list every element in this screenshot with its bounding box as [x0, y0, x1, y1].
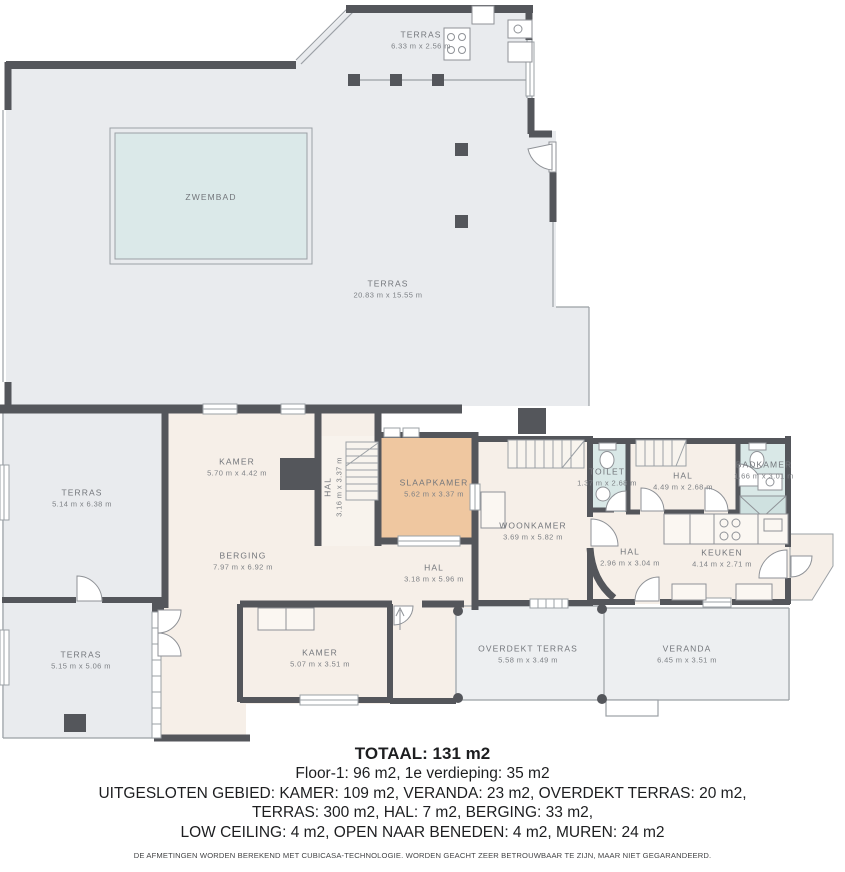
counter: [672, 584, 706, 600]
terrace-post: [390, 74, 402, 86]
outdoor-stove: [444, 28, 470, 60]
closet: [481, 492, 505, 528]
porch-post: [597, 694, 607, 704]
slaapkamer-area: [380, 432, 476, 542]
toilet-icon: [749, 443, 766, 450]
floorplan-drawing: [0, 0, 845, 745]
summary-line-floors: Floor-1: 96 m2, 1e verdieping: 35 m2: [0, 764, 845, 784]
toilet-icon: [599, 443, 616, 450]
summary-disclaimer: DE AFMETINGEN WORDEN BEREKEND MET CUBICA…: [0, 851, 845, 860]
outdoor-sink: [508, 20, 532, 38]
summary-line-excluded-1: UITGESLOTEN GEBIED: KAMER: 109 m2, VERAN…: [0, 784, 845, 804]
floorplan-page: TERRAS6.33 m x 2.56 m ZWEMBAD TERRAS20.8…: [0, 0, 845, 872]
sink-icon: [758, 474, 782, 490]
terrace-west-area: [2, 406, 165, 602]
overdekt-terras-area: [455, 604, 605, 700]
toilet-icon: [600, 452, 614, 469]
chimney-block: [518, 408, 546, 434]
area-fills: [2, 8, 833, 740]
toilet-icon: [750, 452, 764, 469]
counter: [736, 584, 772, 600]
porch-post: [597, 604, 607, 614]
terrace-post: [432, 74, 444, 86]
outdoor-cabinet: [508, 42, 532, 62]
terrace-post: [64, 714, 86, 732]
pool: [110, 128, 312, 264]
hal-south-area: [380, 542, 478, 608]
veranda-area: [605, 608, 790, 700]
summary-block: TOTAAL: 131 m2 Floor-1: 96 m2, 1e verdie…: [0, 744, 845, 860]
interior-block: [280, 458, 318, 490]
porch-post: [453, 606, 463, 616]
terrace-post: [348, 74, 360, 86]
summary-line-excluded-2: TERRAS: 300 m2, HAL: 7 m2, BERGING: 33 m…: [0, 803, 845, 823]
sink-icon: [596, 487, 610, 501]
terrace-post: [455, 215, 468, 228]
summary-total: TOTAAL: 131 m2: [0, 744, 845, 764]
summary-line-excluded-3: LOW CEILING: 4 m2, OPEN NAAR BENEDEN: 4 …: [0, 823, 845, 843]
porch-post: [453, 693, 463, 703]
terrace-post: [455, 143, 468, 156]
outdoor-cabinet: [472, 6, 494, 24]
